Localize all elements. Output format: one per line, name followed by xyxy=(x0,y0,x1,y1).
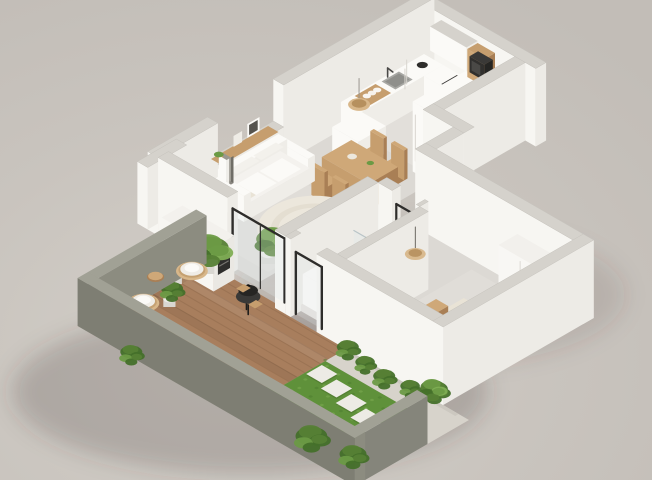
floorplan-render xyxy=(0,0,652,480)
studio-backdrop xyxy=(0,0,652,480)
